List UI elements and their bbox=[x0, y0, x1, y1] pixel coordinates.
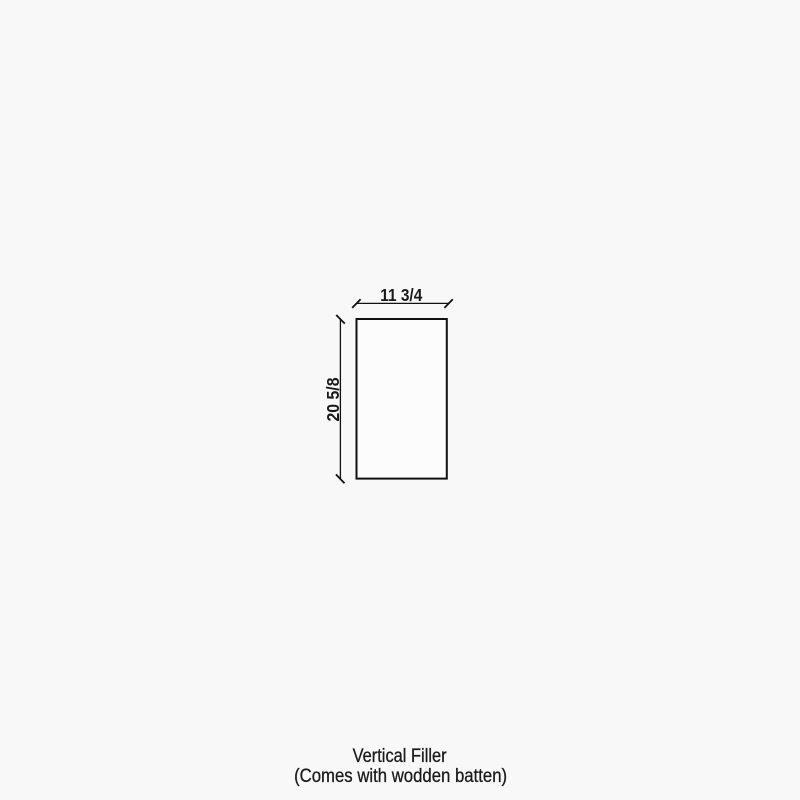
svg-text:11 3/4: 11 3/4 bbox=[380, 285, 422, 305]
svg-text:(Comes with wodden batten): (Comes with wodden batten) bbox=[294, 766, 507, 787]
svg-text:Vertical Filler: Vertical Filler bbox=[353, 746, 448, 767]
svg-text:20 5/8: 20 5/8 bbox=[323, 377, 343, 421]
